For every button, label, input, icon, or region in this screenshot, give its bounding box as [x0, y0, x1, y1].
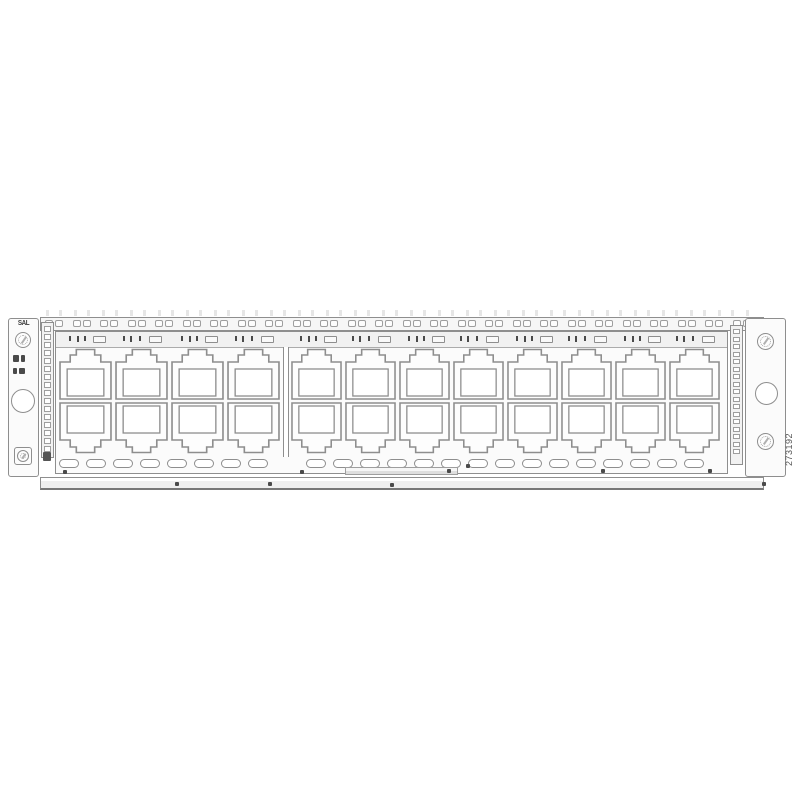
rail-slot-cell — [238, 320, 246, 327]
port-number-mark — [77, 336, 79, 342]
port-led-window — [324, 336, 337, 343]
vent-slot — [194, 459, 214, 468]
rail-slot — [348, 320, 366, 327]
hole-cell — [733, 382, 740, 387]
rail-slot-cell — [550, 320, 558, 327]
vent-slot — [59, 459, 79, 468]
rail-slot-cell — [55, 320, 63, 327]
led-cell — [44, 350, 51, 356]
vent-slot — [576, 459, 596, 468]
rail-slot — [375, 320, 393, 327]
rail-slot-cell — [210, 320, 218, 327]
ports-top-group-1 — [59, 348, 280, 400]
rail-slot — [650, 320, 668, 327]
rail-slot-cell — [183, 320, 191, 327]
top-ghost-marks — [46, 310, 758, 316]
rail-slot — [293, 320, 311, 327]
port-number-mark — [300, 336, 302, 341]
rivet-mark — [762, 482, 766, 486]
vent-slot — [113, 459, 133, 468]
rail-slot-cell — [430, 320, 438, 327]
screw-icon — [17, 450, 29, 462]
screw-icon — [757, 333, 774, 350]
rail-slot-cell — [165, 320, 173, 327]
led-cell — [44, 334, 51, 340]
port-led-window — [149, 336, 162, 343]
rail-slot-cell — [568, 320, 576, 327]
port-led-window — [378, 336, 391, 343]
port-number-mark — [189, 336, 191, 342]
hole-cell — [733, 419, 740, 424]
port-number-mark — [467, 336, 469, 342]
rivet-mark — [447, 469, 451, 473]
figure-number: 273192 — [784, 412, 794, 466]
rj45-port — [227, 402, 280, 454]
port-led-window — [594, 336, 607, 343]
led-cell — [44, 390, 51, 396]
vent-group-1 — [59, 459, 268, 468]
port-number-mark — [130, 336, 132, 342]
ports-row-top — [56, 348, 727, 400]
vent-slot — [522, 459, 542, 468]
port-number-mark — [315, 336, 317, 341]
rail-slot — [320, 320, 338, 327]
vent-slot — [306, 459, 326, 468]
rail-slot-cell — [458, 320, 466, 327]
rail-slot-cell — [293, 320, 301, 327]
rj45-port — [453, 402, 504, 454]
rail-slot — [73, 320, 91, 327]
port-number-mark — [683, 336, 685, 342]
rail-slot — [210, 320, 228, 327]
hole-cell — [733, 367, 740, 372]
rail-slot — [128, 320, 146, 327]
port-led-window — [432, 336, 445, 343]
rj45-port — [171, 348, 224, 400]
led-cell — [44, 398, 51, 404]
led-cell — [44, 438, 51, 444]
rail-slot-cell — [495, 320, 503, 327]
port-number-mark — [139, 336, 141, 341]
rail-slot-cell — [440, 320, 448, 327]
led-cell — [44, 374, 51, 380]
rj45-port — [115, 348, 168, 400]
rail-slot-cell — [485, 320, 493, 327]
rj45-port — [291, 348, 342, 400]
rj45-port — [227, 348, 280, 400]
port-number-mark — [69, 336, 71, 341]
screw-icon — [757, 433, 774, 450]
port-led-window — [205, 336, 218, 343]
rail-slot-cell — [623, 320, 631, 327]
rj45-port — [615, 402, 666, 454]
rail-slot — [678, 320, 696, 327]
screw-icon — [15, 332, 31, 348]
right-mounting-bracket — [745, 318, 786, 477]
rail-slot-cell — [403, 320, 411, 327]
vent-slot — [630, 459, 650, 468]
rj45-port — [291, 402, 342, 454]
vent-slot — [248, 459, 268, 468]
port-led-window — [540, 336, 553, 343]
port-number-mark — [692, 336, 694, 341]
port-number-mark — [308, 336, 310, 342]
rail-slot — [485, 320, 503, 327]
rail-slot-cell — [715, 320, 723, 327]
rail-slot-cell — [275, 320, 283, 327]
hole-cell — [733, 404, 740, 409]
port-led-window — [261, 336, 274, 343]
led-cell — [44, 382, 51, 388]
rail-slot-cell — [265, 320, 273, 327]
port-number-mark — [181, 336, 183, 341]
rivet-mark — [390, 483, 394, 487]
port-number-mark — [408, 336, 410, 341]
rail-slot-cell — [320, 320, 328, 327]
port-number-mark — [352, 336, 354, 341]
rail-slot-cell — [220, 320, 228, 327]
rail-slot-cell — [385, 320, 393, 327]
rail-slot — [238, 320, 256, 327]
ports-row-bottom — [56, 402, 727, 454]
rivet-mark — [601, 469, 605, 473]
rivet-mark — [466, 464, 470, 468]
rj45-port — [669, 402, 720, 454]
vent-slot — [140, 459, 160, 468]
hole-cell — [733, 442, 740, 447]
led-cell — [44, 326, 51, 332]
led-cell — [44, 406, 51, 412]
rj45-port — [345, 348, 396, 400]
port-number-mark — [368, 336, 370, 341]
port-number-mark — [423, 336, 425, 341]
rail-slot — [458, 320, 476, 327]
strip-mark — [43, 452, 51, 461]
handle-bar — [345, 467, 458, 475]
rail-slot-cell — [83, 320, 91, 327]
rail-slot-cell — [358, 320, 366, 327]
rail-slot-cell — [138, 320, 146, 327]
rail-slot-cell — [633, 320, 641, 327]
hole-cell — [733, 329, 740, 334]
ports-bottom-group-2 — [291, 402, 720, 454]
rail-slot — [705, 320, 723, 327]
rivet-mark — [175, 482, 179, 486]
rail-slot-cell — [128, 320, 136, 327]
compliance-mark-icon — [13, 355, 25, 362]
hole-cell — [733, 344, 740, 349]
hole-cell — [733, 359, 740, 364]
rail-slot — [100, 320, 118, 327]
bracket-label: SAL — [10, 320, 36, 327]
rail-slot-cell — [100, 320, 108, 327]
top-rail — [40, 317, 764, 331]
rail-slot-cell — [73, 320, 81, 327]
rail-slot — [183, 320, 201, 327]
rj45-port — [561, 402, 612, 454]
port-number-mark — [516, 336, 518, 341]
rj45-port — [399, 402, 450, 454]
vent-slot — [549, 459, 569, 468]
port-number-mark — [531, 336, 533, 341]
rail-slot-cell — [540, 320, 548, 327]
rail-slot-cell — [155, 320, 163, 327]
vent-slot — [86, 459, 106, 468]
port-number-mark — [196, 336, 198, 341]
port-number-mark — [632, 336, 634, 342]
rail-slot-cell — [650, 320, 658, 327]
rivet-mark — [268, 482, 272, 486]
rail-slot-cell — [248, 320, 256, 327]
rj45-port — [615, 348, 666, 400]
port-number-mark — [123, 336, 125, 341]
hole-cell — [733, 427, 740, 432]
port-label-strip — [56, 332, 727, 348]
rj45-port — [507, 348, 558, 400]
rj45-port — [345, 402, 396, 454]
rj45-port — [669, 348, 720, 400]
port-number-mark — [359, 336, 361, 342]
vent-slot — [167, 459, 187, 468]
rail-slot-cell — [523, 320, 531, 327]
port-number-mark — [235, 336, 237, 341]
rail-slot-cell — [595, 320, 603, 327]
screw-plate — [14, 447, 32, 465]
port-number-mark — [624, 336, 626, 341]
port-number-mark — [584, 336, 586, 341]
hole-cell — [733, 352, 740, 357]
vent-slot — [495, 459, 515, 468]
rj45-port — [561, 348, 612, 400]
top-rail-slots — [41, 318, 763, 327]
rail-slot — [568, 320, 586, 327]
rj45-port — [59, 348, 112, 400]
rj45-port — [171, 402, 224, 454]
rail-slot-cell — [513, 320, 521, 327]
port-number-mark — [568, 336, 570, 341]
port-led-window — [702, 336, 715, 343]
rail-slot-cell — [193, 320, 201, 327]
rail-slot-cell — [348, 320, 356, 327]
rivet-mark — [63, 470, 67, 474]
port-number-mark — [476, 336, 478, 341]
hole-cell — [733, 449, 740, 454]
rail-slot — [623, 320, 641, 327]
led-cell — [44, 366, 51, 372]
left-mounting-bracket: SAL — [8, 318, 39, 477]
hole-cell — [733, 412, 740, 417]
rail-slot-cell — [468, 320, 476, 327]
port-number-mark — [416, 336, 418, 342]
hole-strip — [730, 325, 743, 465]
faceplate — [55, 331, 728, 474]
thumbscrew-hole — [755, 382, 778, 405]
port-number-mark — [242, 336, 244, 342]
thumbscrew-hole — [11, 389, 35, 413]
port-number-mark — [251, 336, 253, 341]
rail-slot-cell — [110, 320, 118, 327]
port-number-mark — [575, 336, 577, 342]
rail-slot-cell — [688, 320, 696, 327]
rj45-port — [115, 402, 168, 454]
rail-slot — [265, 320, 283, 327]
rail-slot-cell — [375, 320, 383, 327]
port-led-window — [486, 336, 499, 343]
led-cell — [44, 414, 51, 420]
rail-slot-cell — [605, 320, 613, 327]
rivet-mark — [300, 470, 304, 474]
rail-slot-cell — [330, 320, 338, 327]
ports-top-group-2 — [291, 348, 720, 400]
rj45-port — [59, 402, 112, 454]
rivet-mark — [708, 469, 712, 473]
led-cell — [44, 358, 51, 364]
port-number-mark — [676, 336, 678, 341]
rail-slot-cell — [413, 320, 421, 327]
ports-bottom-group-1 — [59, 402, 280, 454]
hole-cell — [733, 337, 740, 342]
vent-slot — [657, 459, 677, 468]
hole-cell — [733, 374, 740, 379]
rj45-port — [399, 348, 450, 400]
compliance-mark-icon — [13, 368, 25, 374]
module-faceplate-drawing: SAL 273 — [0, 0, 800, 800]
port-number-mark — [524, 336, 526, 342]
rail-slot — [403, 320, 421, 327]
port-led-window — [93, 336, 106, 343]
port-number-mark — [460, 336, 462, 341]
hole-cell — [733, 397, 740, 402]
rail-slot-cell — [578, 320, 586, 327]
port-number-mark — [639, 336, 641, 341]
vent-slot — [684, 459, 704, 468]
led-cell — [44, 430, 51, 436]
led-strip — [41, 322, 54, 458]
vent-slot — [603, 459, 623, 468]
rail-slot — [540, 320, 558, 327]
port-led-window — [648, 336, 661, 343]
bottom-rail — [40, 477, 764, 490]
rj45-port — [507, 402, 558, 454]
vent-slot — [468, 459, 488, 468]
rail-slot — [513, 320, 531, 327]
rail-slot-cell — [705, 320, 713, 327]
rail-slot — [430, 320, 448, 327]
led-cell — [44, 342, 51, 348]
vent-slot — [221, 459, 241, 468]
rail-slot — [155, 320, 173, 327]
rj45-port — [453, 348, 504, 400]
rail-slot — [595, 320, 613, 327]
hole-cell — [733, 389, 740, 394]
led-cell — [44, 422, 51, 428]
rail-slot-cell — [660, 320, 668, 327]
hole-cell — [733, 434, 740, 439]
rail-slot-cell — [678, 320, 686, 327]
port-number-mark — [84, 336, 86, 341]
rail-slot-cell — [303, 320, 311, 327]
